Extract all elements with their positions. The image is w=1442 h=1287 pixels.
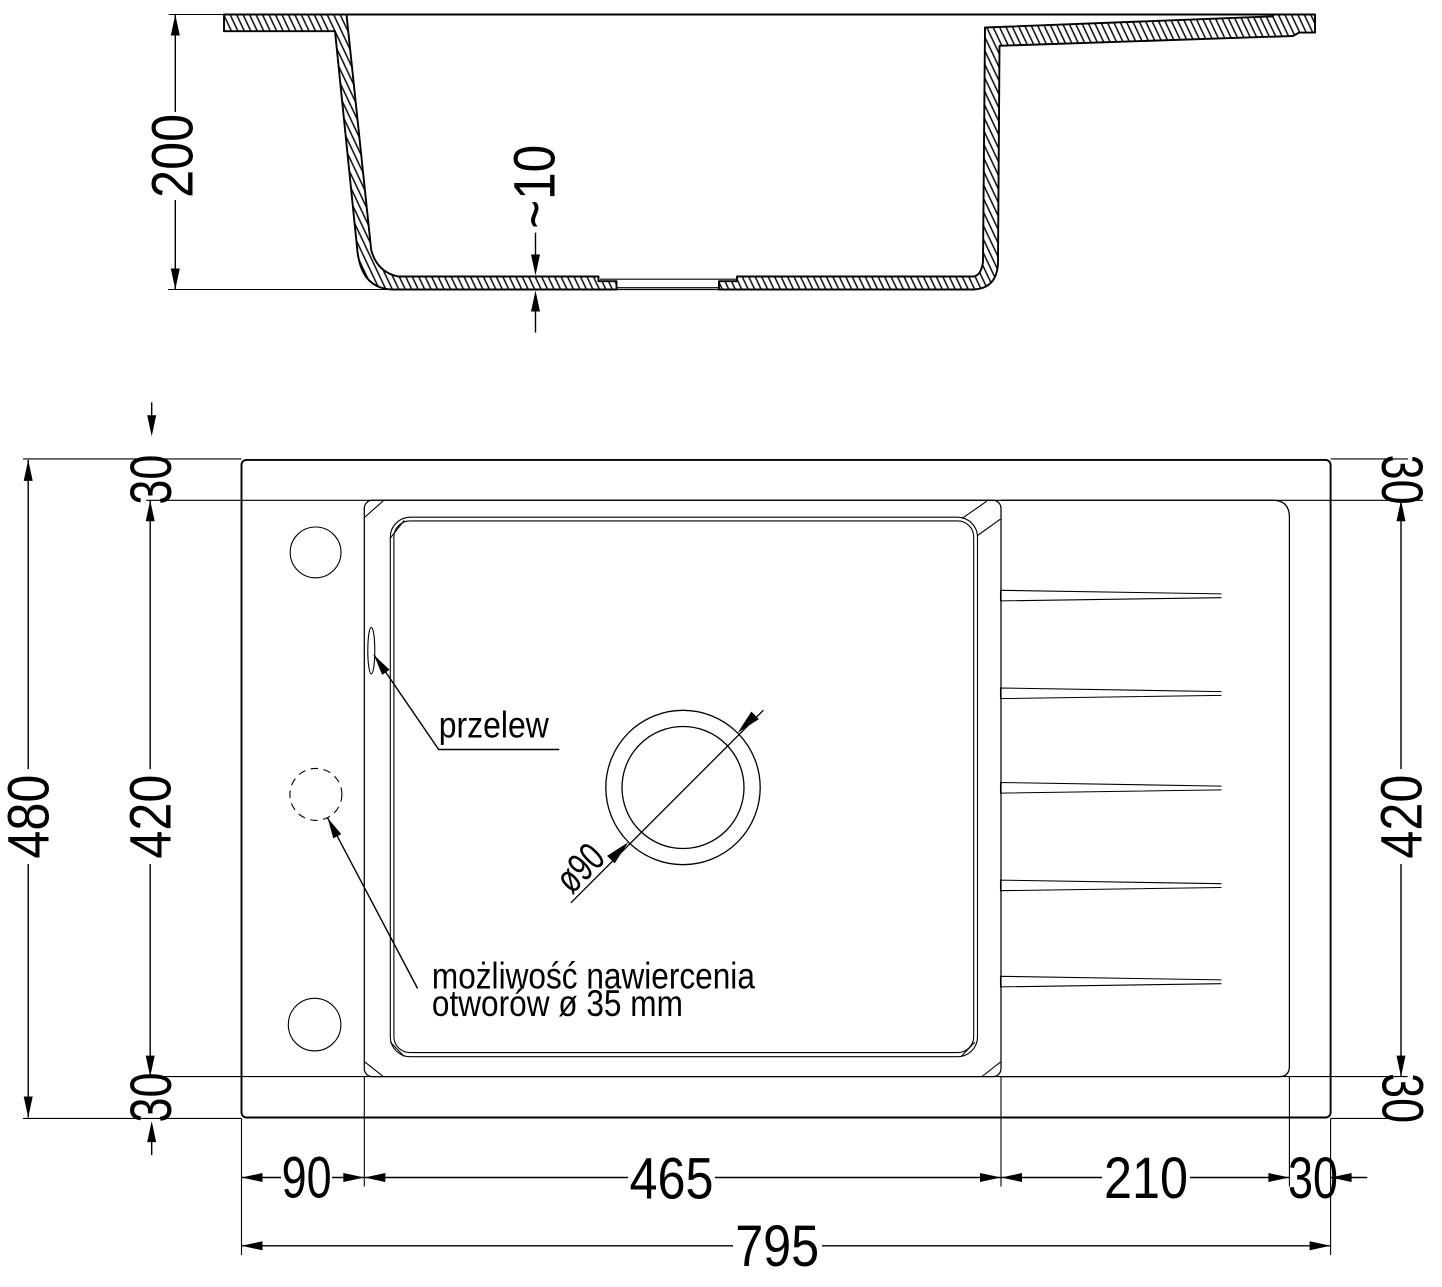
svg-text:otworów ø 35 mm: otworów ø 35 mm	[432, 983, 683, 1024]
svg-text:30: 30	[1370, 1073, 1435, 1123]
svg-text:420: 420	[1369, 775, 1434, 859]
svg-text:795: 795	[735, 1214, 819, 1279]
svg-text:~10: ~10	[503, 145, 568, 229]
svg-text:200: 200	[141, 114, 206, 198]
svg-text:przelew: przelew	[439, 705, 549, 746]
svg-text:30: 30	[119, 455, 184, 505]
svg-text:210: 210	[1104, 1146, 1188, 1211]
svg-text:30: 30	[1288, 1146, 1338, 1211]
svg-text:90: 90	[282, 1146, 332, 1211]
svg-text:420: 420	[119, 775, 184, 859]
svg-text:480: 480	[0, 775, 62, 859]
svg-text:465: 465	[630, 1147, 714, 1212]
svg-text:30: 30	[1369, 455, 1434, 505]
svg-text:30: 30	[119, 1073, 184, 1123]
